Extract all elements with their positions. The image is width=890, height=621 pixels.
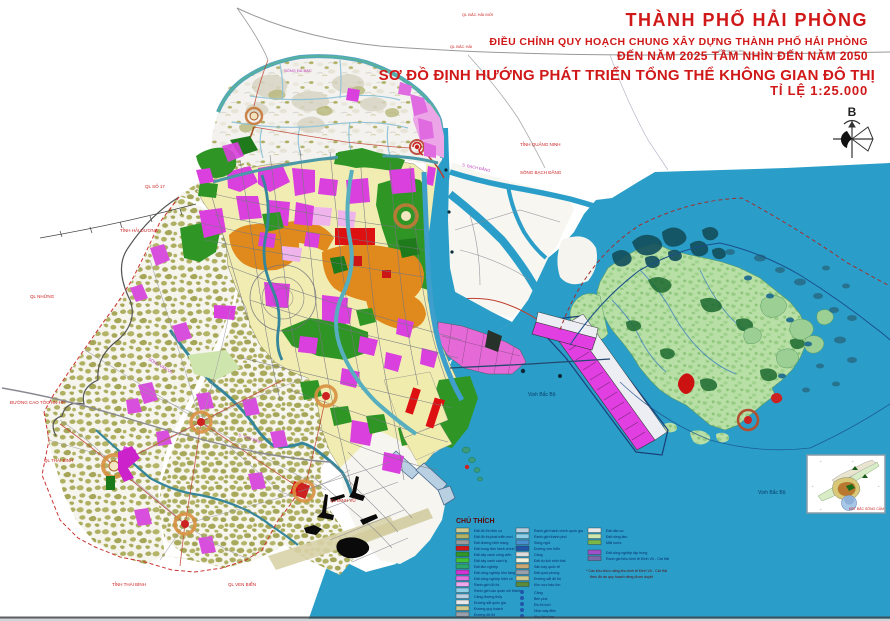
svg-text:theo đồ án quy hoạch riêng đượ: theo đồ án quy hoạch riêng được duyệt [590, 575, 653, 579]
svg-text:Ranh giới đô thị: Ranh giới đô thị [474, 583, 500, 587]
svg-text:QL THÁI BÌNH: QL THÁI BÌNH [44, 457, 73, 463]
svg-text:Đất đô thị phát triển mới: Đất đô thị phát triển mới [474, 535, 513, 539]
svg-text:QL SỐ 17: QL SỐ 17 [145, 183, 165, 189]
svg-text:QL ĐÌNH VŨ: QL ĐÌNH VŨ [330, 497, 356, 503]
svg-text:QL BẮC HẢI MỚI: QL BẮC HẢI MỚI [462, 12, 493, 17]
svg-text:Đường sắt quốc gia: Đường sắt quốc gia [474, 600, 506, 605]
svg-text:Đô thị mới: Đô thị mới [534, 603, 551, 607]
svg-text:Đường sắt đô thị: Đường sắt đô thị [534, 576, 561, 581]
svg-text:* Các khu chức năng khu kinh t: * Các khu chức năng khu kinh tế Đình Vũ … [586, 569, 667, 573]
svg-text:THÀNH PHỐ HẢI PHÒNG: THÀNH PHỐ HẢI PHÒNG [625, 9, 868, 30]
svg-text:B: B [848, 105, 857, 119]
svg-text:ĐẾN NĂM 2025 TẦM NHÌN ĐẾN NĂM: ĐẾN NĂM 2025 TẦM NHÌN ĐẾN NĂM 2050 [617, 48, 868, 63]
svg-text:ĐIỀU CHỈNH QUY HOẠCH CHUNG XÂY: ĐIỀU CHỈNH QUY HOẠCH CHUNG XÂY DỰNG THÀN… [489, 34, 868, 48]
svg-text:Đường quy hoạch: Đường quy hoạch [474, 607, 503, 611]
svg-text:Đất công nghiệp hiện có: Đất công nghiệp hiện có [474, 577, 513, 581]
svg-text:Đất cây xanh công viên: Đất cây xanh công viên [474, 553, 511, 557]
svg-text:Đất đô thị hiện có: Đất đô thị hiện có [474, 529, 502, 533]
svg-text:TỈNH THÁI BÌNH: TỈNH THÁI BÌNH [112, 581, 146, 587]
svg-text:Vịnh Bắc Bộ: Vịnh Bắc Bộ [758, 489, 786, 496]
svg-text:Đất công nghiệp kho tàng: Đất công nghiệp kho tàng [474, 571, 515, 575]
svg-text:Đất công nghiệp tập trung: Đất công nghiệp tập trung [606, 551, 647, 555]
svg-text:Đường ven biển: Đường ven biển [534, 547, 560, 551]
svg-text:Đất quốc phòng: Đất quốc phòng [534, 571, 559, 575]
svg-text:Đất du lịch sinh thái: Đất du lịch sinh thái [534, 559, 566, 563]
svg-text:Đất nông lâm: Đất nông lâm [606, 535, 627, 539]
svg-text:Đất lâm nghiệp: Đất lâm nghiệp [474, 565, 498, 569]
svg-text:Sông ngòi: Sông ngòi [534, 541, 550, 545]
svg-text:Nhà máy điện: Nhà máy điện [534, 609, 556, 613]
svg-text:Đất đường hiện trạng: Đất đường hiện trạng [474, 541, 508, 545]
svg-text:Đất dân cư: Đất dân cư [606, 529, 624, 533]
svg-text:ĐƯỜNG CAO TỐC HN-HP: ĐƯỜNG CAO TỐC HN-HP [10, 399, 65, 405]
svg-text:TỈNH QUẢNG NINH: TỈNH QUẢNG NINH [520, 141, 561, 147]
svg-text:Đất trung tâm hành chính: Đất trung tâm hành chính [474, 547, 515, 551]
svg-text:Bến phà: Bến phà [534, 597, 547, 601]
svg-text:+: + [820, 459, 822, 463]
svg-text:Ranh giới khu kinh tế Đình Vũ: Ranh giới khu kinh tế Đình Vũ - Cát Hải [606, 557, 669, 561]
svg-text:+: + [852, 459, 854, 463]
svg-text:TỈNH HẢI DƯƠNG: TỈNH HẢI DƯƠNG [120, 227, 159, 233]
svg-text:KĐT BẮC SÔNG CẤM: KĐT BẮC SÔNG CẤM [849, 506, 884, 511]
svg-text:QL BẮC HẢI: QL BẮC HẢI [450, 44, 472, 49]
svg-text:Vịnh Bắc Bộ: Vịnh Bắc Bộ [528, 391, 556, 398]
svg-text:Khu vực bảo tồn: Khu vực bảo tồn [534, 583, 560, 587]
svg-text:TỈ LỆ 1:25.000: TỈ LỆ 1:25.000 [770, 83, 868, 98]
svg-text:Mặt nước: Mặt nước [606, 541, 622, 545]
svg-text:QL VEN BIỂN: QL VEN BIỂN [228, 581, 256, 587]
svg-text:+: + [812, 484, 814, 488]
svg-text:Đất cây xanh cách ly: Đất cây xanh cách ly [474, 559, 507, 563]
svg-text:SÔNG ĐÁ BẠC: SÔNG ĐÁ BẠC [284, 68, 312, 73]
svg-text:+: + [852, 507, 854, 511]
svg-text:Cảng: Cảng [534, 591, 543, 595]
svg-text:Ranh giới thành phố: Ranh giới thành phố [534, 535, 567, 539]
svg-text:SƠ ĐỒ ĐỊNH HƯỚNG PHÁT TRIỂN TỔ: SƠ ĐỒ ĐỊNH HƯỚNG PHÁT TRIỂN TỔNG THỂ KHÔ… [379, 66, 875, 84]
svg-text:Sân bay quốc tế: Sân bay quốc tế [534, 565, 560, 569]
svg-text:Cảng: Cảng [534, 553, 543, 557]
svg-text:SÔNG BẠCH ĐẰNG: SÔNG BẠCH ĐẰNG [520, 168, 562, 175]
svg-text:+: + [820, 507, 822, 511]
svg-text:Đường đô thị: Đường đô thị [474, 613, 495, 617]
svg-text:Ranh giới hành chính quốc gia: Ranh giới hành chính quốc gia [534, 529, 583, 533]
svg-text:CHÚ THÍCH: CHÚ THÍCH [456, 516, 495, 525]
svg-text:Ranh giới các quận nội thành: Ranh giới các quận nội thành [474, 589, 521, 593]
svg-text:+: + [878, 484, 880, 488]
svg-text:QL NHỮNG: QL NHỮNG [30, 293, 55, 299]
svg-text:Cảng đường thủy: Cảng đường thủy [474, 595, 502, 599]
